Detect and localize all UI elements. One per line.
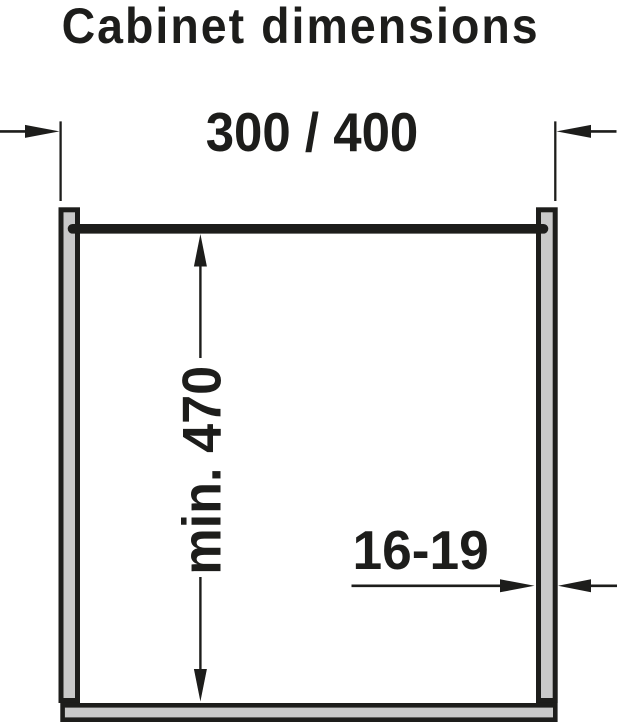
svg-text:Cabinet dimensions: Cabinet dimensions <box>62 0 540 54</box>
svg-text:16-19: 16-19 <box>352 520 488 581</box>
svg-text:300 / 400: 300 / 400 <box>206 102 419 163</box>
svg-text:min. 470: min. 470 <box>172 366 233 575</box>
